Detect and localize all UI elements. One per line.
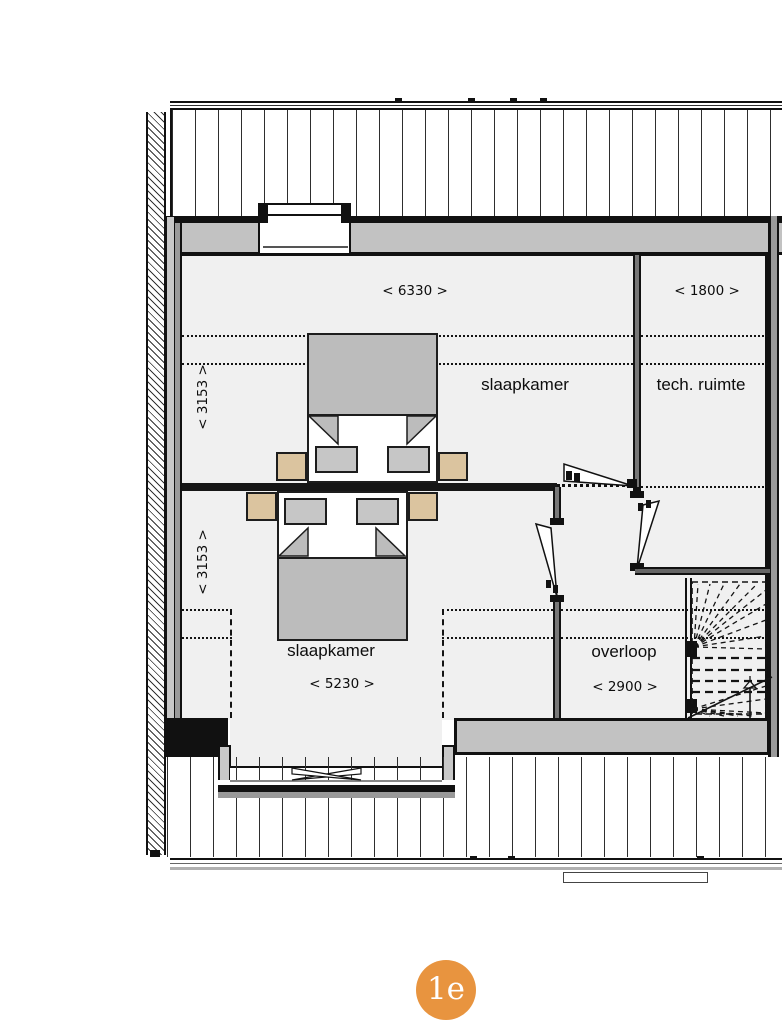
eave-tick [510, 98, 517, 102]
bed-top-pillow [315, 446, 358, 473]
window-jamb [258, 203, 268, 223]
gable-step [150, 850, 160, 857]
stair-newel-post [686, 699, 697, 713]
wall-techroom-left [633, 255, 641, 490]
dim-depth-bedroom-top: < 3153 > [195, 337, 211, 457]
knee-line [641, 486, 768, 488]
exterior-wall-top-fill [174, 223, 258, 255]
bed-bottom-pillow [284, 498, 327, 525]
room-label-tech-room: tech. ruimte [641, 375, 761, 395]
window-frame-line [268, 214, 341, 216]
dim-width-landing: < 2900 > [565, 679, 685, 695]
dim-depth-bedroom-bottom: < 3153 > [195, 502, 211, 622]
eave-line-bottom [170, 863, 782, 864]
bay-window-outer [218, 785, 455, 792]
dormer-window-top [258, 203, 351, 256]
ridge-line [170, 101, 782, 103]
eave-line-bottom [170, 867, 782, 870]
wall-bedrooms-divider [182, 483, 557, 491]
bay-window-frame-line [230, 780, 442, 782]
exterior-wall-top [351, 216, 782, 223]
roof-hatch-top [170, 110, 782, 216]
door-jamb [630, 491, 644, 498]
nightstand [408, 492, 438, 521]
room-label-landing: overloop [560, 642, 688, 662]
door-jamb [550, 595, 564, 602]
knee-line [561, 637, 768, 639]
bottom-wall-band [454, 718, 770, 755]
nightstand [276, 452, 307, 481]
exterior-wall-top-fill [351, 223, 770, 255]
bay-window-base [218, 792, 455, 798]
knee-line [442, 609, 553, 611]
gable-edge-strip [146, 112, 166, 855]
eave-tick [540, 98, 547, 102]
nightstand [246, 492, 277, 521]
eave-tick [468, 98, 475, 102]
nightstand [438, 452, 468, 481]
left-wall-inner [175, 223, 182, 757]
door-hinge-mark [627, 479, 637, 488]
knee-zone-edge [442, 609, 444, 718]
eave-tick [470, 856, 477, 860]
dim-width-tech-room: < 1800 > [647, 283, 767, 299]
door-opening-dotted [557, 484, 637, 487]
bed-top-pillow [387, 446, 430, 473]
wall-techroom-bottom [635, 567, 770, 575]
dim-width-bedroom-top: < 6330 > [355, 283, 475, 299]
eave-tick [508, 856, 515, 860]
exterior-wall-top [170, 216, 258, 223]
knee-line [182, 637, 232, 639]
eave-tick [395, 98, 402, 102]
bed-top-blanket [307, 333, 438, 416]
room-label-bedroom-bottom: slaapkamer [256, 641, 406, 661]
room-label-bedroom-top: slaapkamer [450, 375, 600, 395]
knee-line [641, 335, 768, 337]
window-jamb [341, 203, 351, 223]
floor-level-badge: 1e [416, 960, 476, 1020]
roof-hatch-bottom [167, 757, 782, 857]
knee-line [641, 363, 768, 365]
dim-width-bedroom-bottom: < 5230 > [282, 676, 402, 692]
knee-line [561, 609, 768, 611]
eave-tick [697, 856, 704, 860]
knee-zone-edge [230, 609, 232, 718]
door-jamb [550, 518, 564, 525]
bed-bottom-blanket [277, 557, 408, 641]
facade-step-outline [563, 872, 708, 883]
floor-plan-canvas: slaapkamer tech. ruimte slaapkamer overl… [0, 0, 782, 1024]
ridge-line [170, 105, 782, 106]
exterior-wall-right [768, 216, 779, 757]
knee-line [442, 637, 553, 639]
window-sill-line [263, 246, 348, 248]
bed-bottom-pillow [356, 498, 399, 525]
left-wall-outer [166, 216, 175, 757]
